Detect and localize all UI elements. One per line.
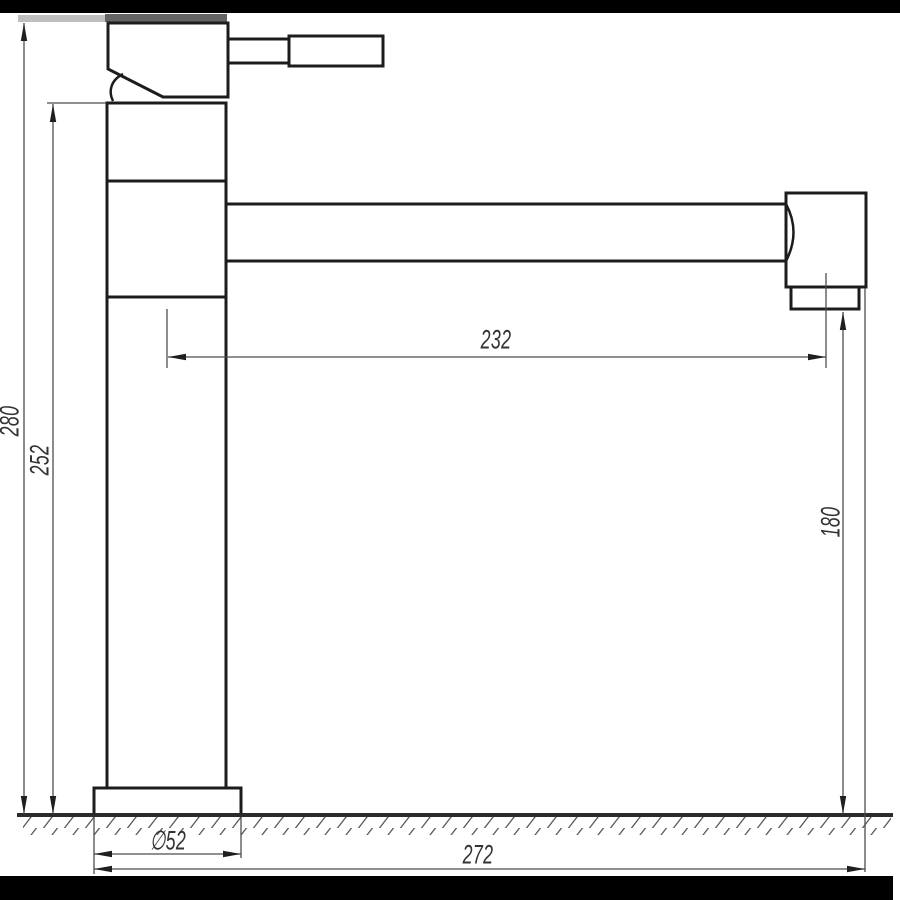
arrow-232-right (808, 354, 826, 360)
dim-label-overall-height-text: 280 (0, 406, 26, 437)
dim-label-overall-reach-text: 272 (463, 840, 494, 871)
arrow-180-bottom (840, 796, 846, 814)
faucet-linework-svg (0, 0, 900, 900)
spout-head-block (786, 193, 866, 287)
dim-label-base-diameter: ∅52 (140, 826, 195, 857)
dim-label-body-height: 252 (25, 437, 56, 484)
dim-label-spout-outlet-height: 180 (816, 499, 847, 546)
dim-label-spout-reach: 232 (473, 325, 520, 356)
arrow-280-bottom (21, 796, 27, 814)
dim-label-body-height-text: 252 (25, 445, 56, 476)
arrow-252-bottom (50, 796, 56, 814)
arrow-272-right (847, 866, 865, 872)
arrow-52-right (223, 851, 241, 857)
faucet-head-outline (108, 23, 228, 97)
spout-nozzle (791, 287, 859, 309)
head-top-extension-strip (18, 15, 107, 22)
head-top-cropped-strip (105, 14, 227, 22)
dim-label-base-diameter-text: ∅52 (150, 826, 186, 857)
dim-label-spout-outlet-height-text: 180 (816, 507, 847, 538)
dim-label-overall-reach: 272 (455, 840, 502, 871)
lever-neck (228, 39, 289, 63)
arrow-52-left (94, 851, 112, 857)
lever-grip (289, 36, 383, 66)
faucet-dimension-drawing: 280 252 232 180 ∅52 272 (0, 0, 900, 900)
spout-tube (226, 204, 786, 261)
body-column (107, 103, 226, 788)
arrow-280-top (21, 23, 27, 41)
dim-label-spout-reach-text: 232 (481, 325, 512, 356)
base-plate (94, 788, 241, 815)
dim-label-overall-height: 280 (0, 398, 26, 445)
arrow-272-left (94, 866, 112, 872)
arrow-252-top (50, 104, 56, 122)
arrow-180-top (840, 312, 846, 330)
faucet-outline (94, 23, 866, 815)
lever-pivot-arc (111, 74, 123, 101)
